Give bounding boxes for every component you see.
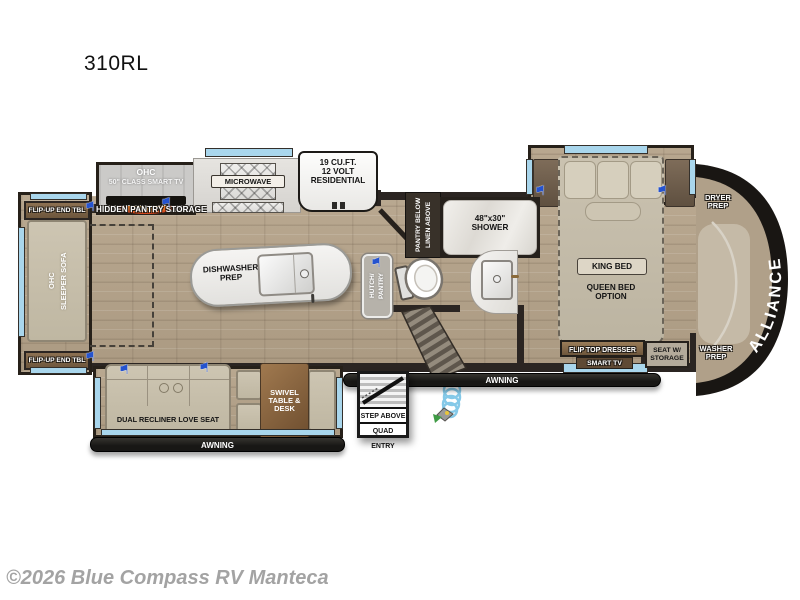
vanity — [470, 250, 518, 314]
slide-flag-icon: ⚑ — [368, 256, 382, 270]
seat-label-line: STORAGE — [647, 355, 687, 362]
accent-pillow — [585, 202, 641, 221]
shower: 48"x30" SHOWER — [440, 197, 540, 258]
refrigerator: 19 CU.FT. 12 VOLT RESIDENTIAL — [298, 151, 378, 212]
flip-top-dresser: FLIP TOP DRESSER — [560, 340, 645, 357]
faucet-icon — [493, 275, 501, 283]
washer-prep-line: PREP — [694, 353, 738, 361]
shower-pan: 48"x30" SHOWER — [443, 200, 537, 255]
sink-icon — [257, 252, 315, 297]
entry-label-line: STEP ABOVE — [360, 407, 406, 422]
fridge-handle — [332, 202, 337, 209]
sink-divider — [293, 255, 296, 293]
svg-layer: ALLIANCE — [0, 0, 800, 600]
slide-flag-icon: ⚑ — [654, 184, 668, 198]
faucet-handle — [311, 294, 314, 303]
microwave-label: MICROWAVE — [211, 175, 285, 188]
floorplan-image: 310RL ©2026 Blue Compass RV Manteca OHC … — [0, 0, 800, 600]
fridge-handle — [340, 202, 345, 209]
pillow — [597, 161, 629, 199]
dryer-prep-line: PREP — [696, 202, 740, 210]
entry-label-line: QUAD ENTRY — [360, 422, 406, 437]
king-bed: KING BED QUEEN BED OPTION — [558, 156, 664, 346]
kitchen-island: DISHWASHER PREP — [189, 242, 354, 308]
slide-flag-icon: ⚑ — [82, 350, 96, 364]
kitchen-counter: MICROWAVE — [193, 158, 301, 213]
slide-flag-icon: ⚑ — [196, 361, 210, 375]
water-hose-icon — [433, 382, 460, 423]
toilet-icon — [394, 255, 445, 303]
entry-step-treads — [360, 374, 406, 407]
vanity-sink-icon — [481, 260, 513, 300]
slide-flag-icon: ⚑ — [82, 200, 96, 214]
pillow — [564, 161, 596, 199]
faucet-icon — [300, 269, 309, 278]
pantry-label: PANTRY BELOW — [415, 193, 422, 257]
island-label: DISHWASHER PREP — [199, 263, 262, 284]
slide-flag-icon: ⚑ — [116, 363, 130, 377]
king-bed-label: KING BED — [577, 258, 647, 275]
seat-with-storage: SEAT W/ STORAGE — [645, 341, 689, 368]
fridge-label: RESIDENTIAL — [300, 177, 376, 186]
bedroom-steps — [402, 306, 466, 380]
dryer-prep-label: DRYER PREP — [696, 194, 740, 210]
hidden-pantry-label: HIDDEN PANTRY STORAGE — [96, 206, 311, 215]
queen-option-line: OPTION — [560, 293, 662, 302]
queen-option-label: QUEEN BED OPTION — [560, 284, 662, 302]
pantry-linen-cabinet: PANTRY BELOW LINEN ABOVE — [405, 192, 441, 258]
seat-label-line: SEAT W/ — [647, 347, 687, 354]
slide-flag-icon: ⚑ — [532, 184, 546, 198]
faucet-handle — [511, 275, 519, 278]
slide-flag-icon: ⚑ — [158, 196, 172, 210]
linen-label: LINEN ABOVE — [425, 193, 432, 257]
dresser-smart-tv: SMART TV — [576, 357, 633, 369]
shower-label: SHOWER — [444, 224, 536, 233]
washer-prep-label: WASHER PREP — [694, 345, 738, 361]
entry-steps: STEP ABOVE QUAD ENTRY — [357, 371, 409, 438]
awning-bar-left: AWNING — [90, 437, 345, 452]
